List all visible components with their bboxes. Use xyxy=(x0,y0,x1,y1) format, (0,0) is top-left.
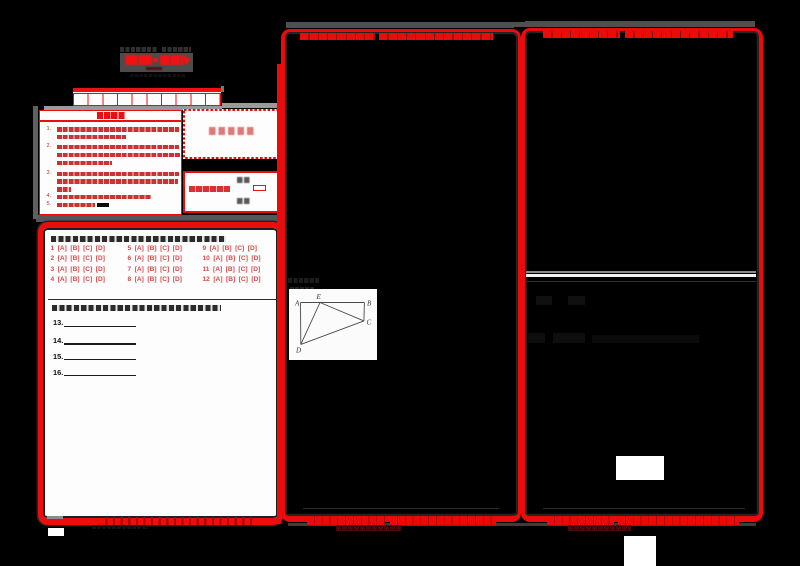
svg-text:B: B xyxy=(367,300,372,308)
svg-text:D: D xyxy=(295,347,301,355)
svg-text:C: C xyxy=(366,319,371,327)
svg-text:E: E xyxy=(315,293,321,301)
svg-text:A: A xyxy=(294,300,300,308)
